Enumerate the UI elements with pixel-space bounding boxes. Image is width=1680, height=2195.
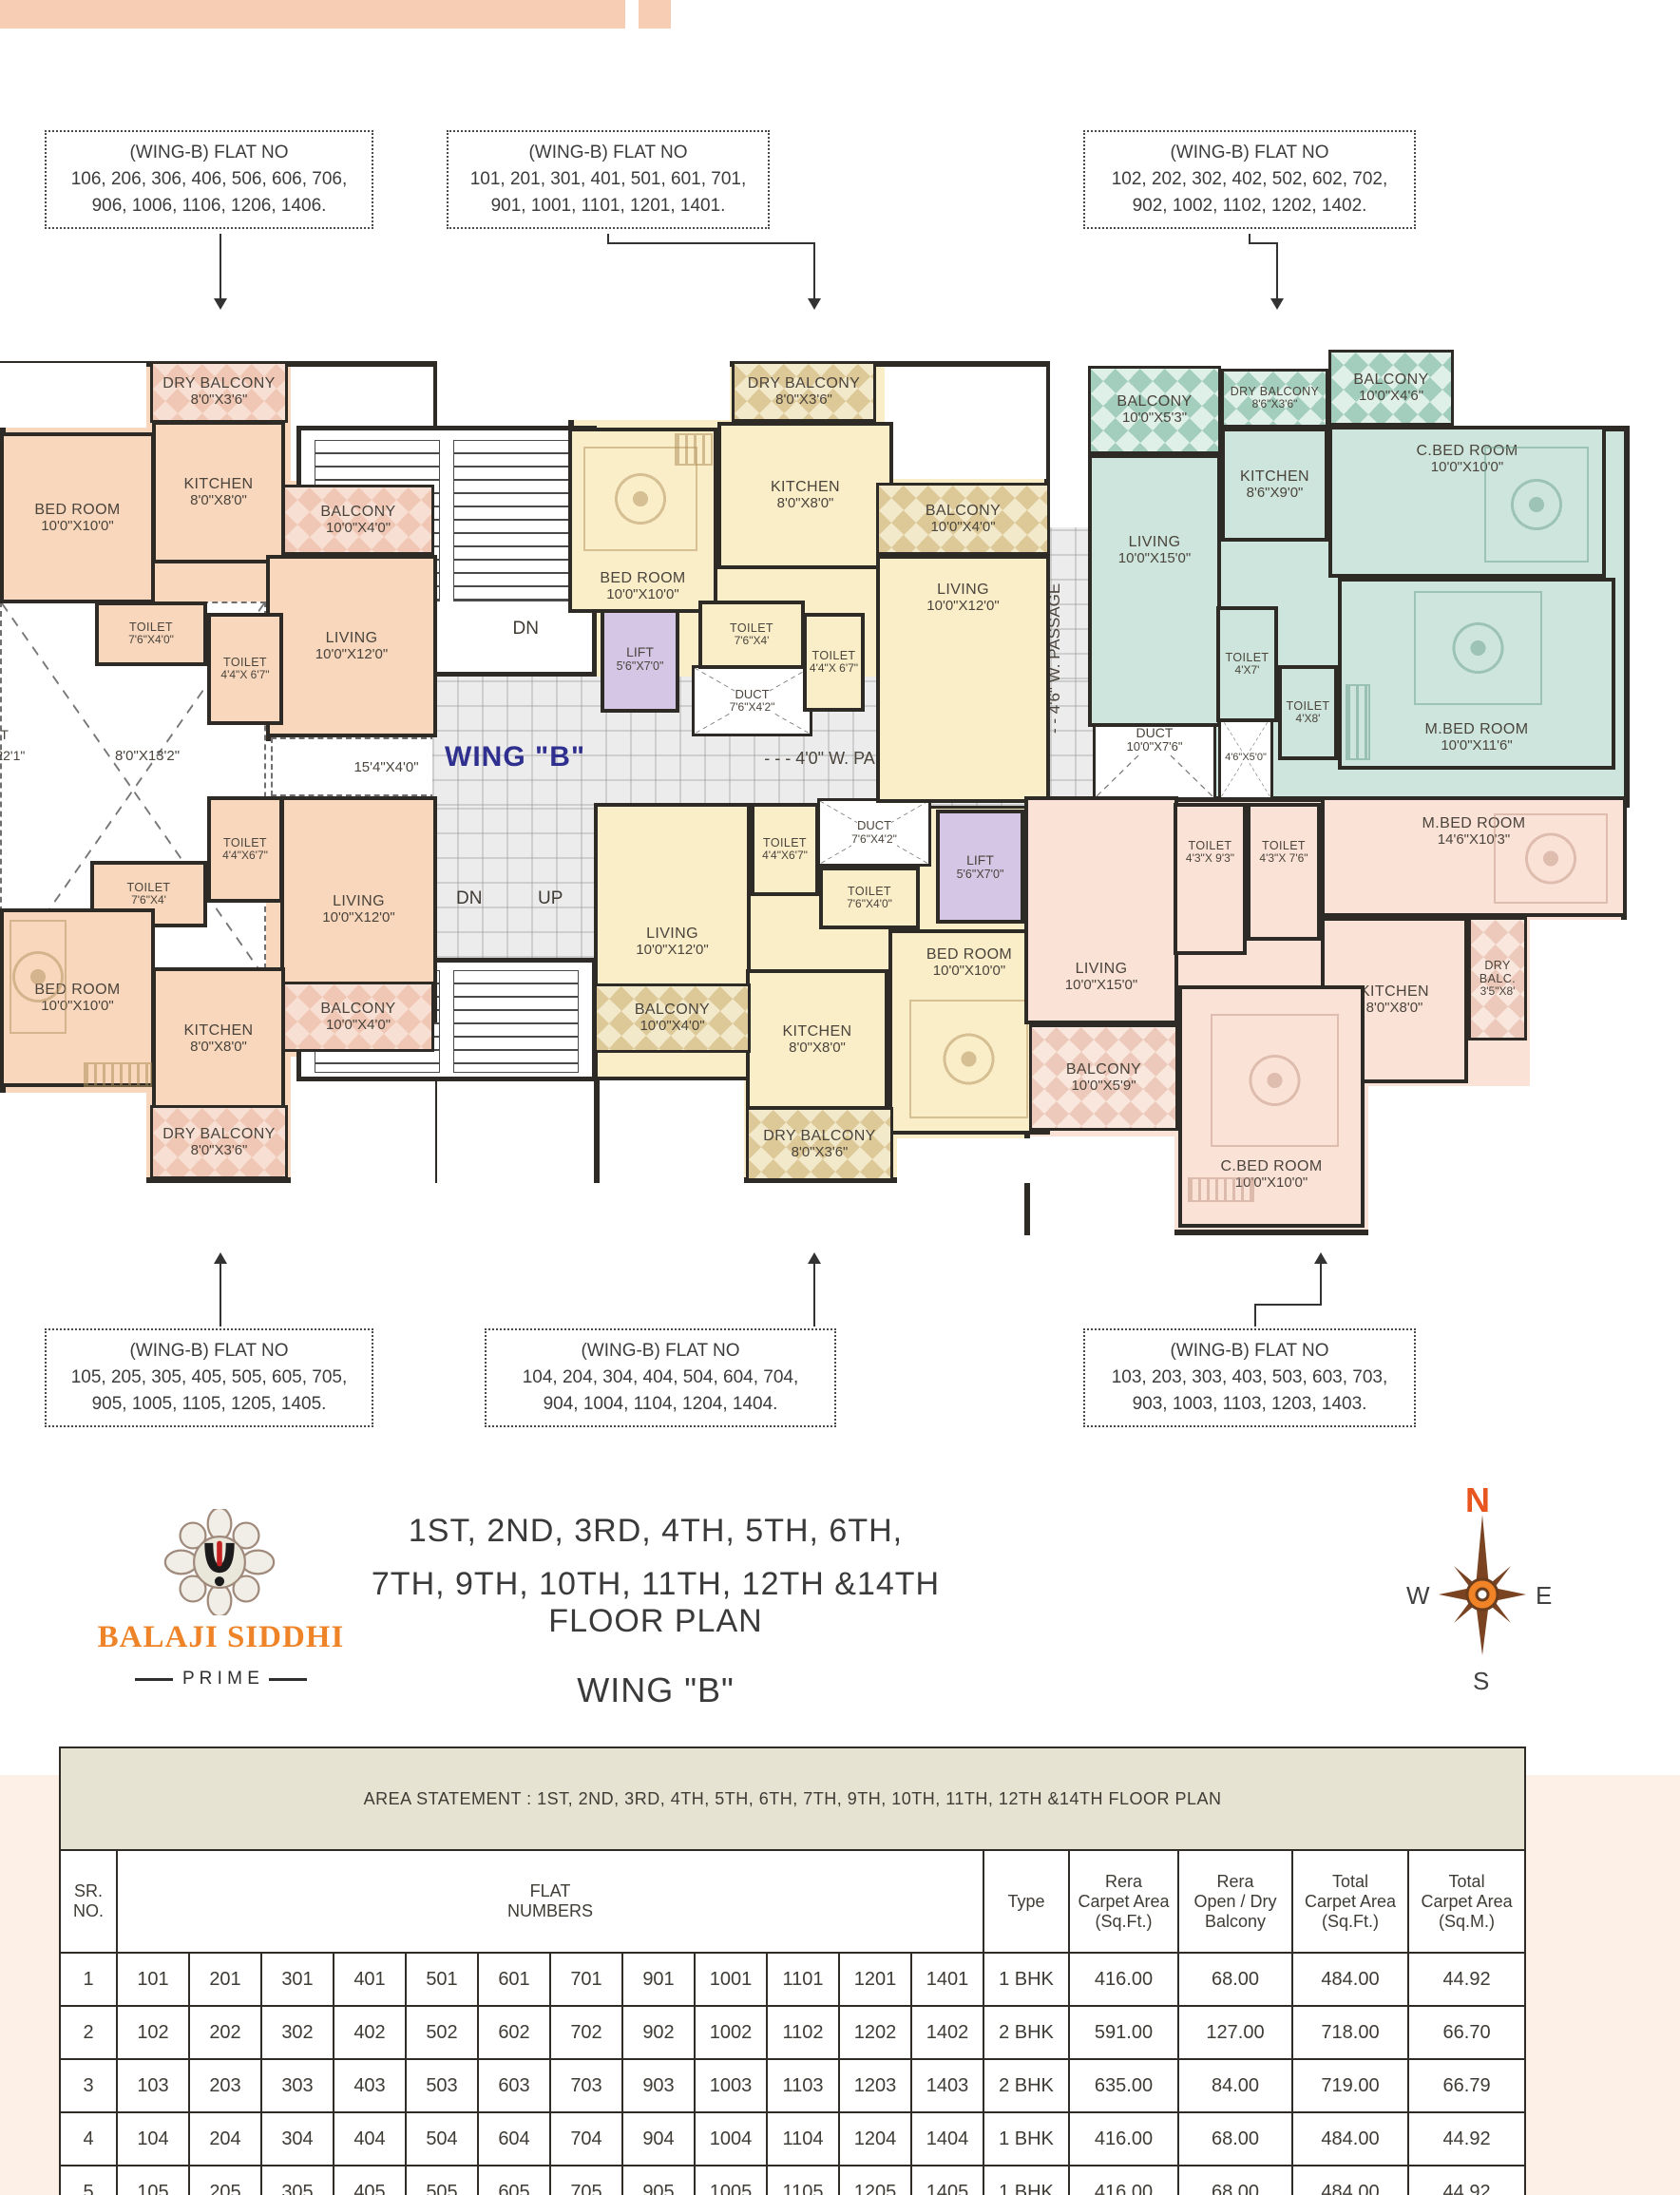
plan-title-line1: 1ST, 2ND, 3RD, 4TH, 5TH, 6TH,	[371, 1513, 941, 1550]
wing-label: WING "B"	[445, 741, 644, 775]
flat-number-cell: 601	[478, 1953, 550, 2006]
arrow-line	[1276, 242, 1278, 301]
compass: N W E S	[1406, 1480, 1568, 1708]
flat-number-cell: 1404	[911, 2112, 983, 2166]
room-dims: 7'6"X4'	[735, 635, 770, 647]
callout-line: 103, 203, 303, 403, 503, 603, 703,	[1085, 1367, 1414, 1388]
room-bedroom: BED ROOM10'0"X10'0"	[568, 428, 717, 613]
room-label: TOILET	[127, 881, 171, 894]
room-dims: 4'X7'	[1235, 664, 1260, 677]
room-balcony: BALCONY10'0"X4'0"	[282, 982, 434, 1052]
room-bedroom: C.BED ROOM10'0"X10'0"	[1178, 985, 1365, 1228]
brand-sub-label: P R I M E	[182, 1669, 259, 1689]
plan-title-line2: 7TH, 9TH, 10TH, 11TH, 12TH &14TH FLOOR P…	[323, 1566, 988, 1640]
room-label: BED ROOM	[926, 946, 1012, 964]
room-dims: 8'0"X3'6"	[775, 392, 832, 409]
room-label: DRY BALCONY	[1231, 385, 1320, 398]
room-label: LIVING	[937, 582, 989, 599]
room-label: TOILET	[1226, 651, 1270, 664]
room-kitchen: KITCHEN8'6"X9'0"	[1221, 428, 1328, 542]
sr-cell: 5	[60, 2166, 117, 2195]
flat-number-cell: 705	[550, 2166, 622, 2195]
duct-dims: 10'0"X7'6"	[1126, 740, 1182, 754]
room-label: LIVING	[1129, 534, 1181, 551]
room-label: TOILET	[1287, 699, 1330, 713]
dash	[135, 1678, 173, 1681]
arrow-up-icon	[808, 1252, 821, 1264]
room-living: LIVING10'0"X15'0"	[1024, 796, 1178, 1024]
flat-number-cell: 201	[189, 1953, 261, 2006]
duct-dims: 4'6"X5'0"	[1225, 752, 1267, 763]
room-label: BALCONY	[635, 1002, 710, 1019]
room-label: TOILET	[763, 836, 807, 849]
flat-number-cell: 1405	[911, 2166, 983, 2195]
room-dims: 10'0"X5'3"	[1122, 410, 1187, 427]
col-rera-open: Rera Open / Dry Balcony	[1178, 1850, 1292, 1953]
flat-number-cell: 501	[406, 1953, 478, 2006]
rera-carpet-cell: 416.00	[1069, 2166, 1178, 2195]
stairs-up-label: UP	[538, 888, 563, 909]
total-sqm-cell: 66.79	[1408, 2059, 1525, 2112]
flat-number-cell: 404	[334, 2112, 406, 2166]
room-dims: 4'4"X6'7"	[762, 849, 808, 862]
room-toilet: TOILET4'4"X6'7"	[751, 803, 819, 896]
arrow-line	[813, 1264, 815, 1327]
flat-number-cell: 1002	[695, 2006, 767, 2059]
callout-title: (WING-B) FLAT NO	[47, 143, 372, 163]
room-label: M.BED ROOM	[1425, 721, 1529, 738]
rera-carpet-cell: 416.00	[1069, 2112, 1178, 2166]
callout-title: (WING-B) FLAT NO	[47, 1341, 372, 1362]
flat-number-cell: 1402	[911, 2006, 983, 2059]
table-row: 4104204304404504604704904100411041204140…	[60, 2112, 1525, 2166]
table-row: 5105205305405505605705905100511051205140…	[60, 2166, 1525, 2195]
wardrobe	[1188, 1177, 1254, 1202]
room-label: C.BED ROOM	[1220, 1158, 1322, 1175]
duct-bottom: DUCT 7'6"X4'2"	[817, 798, 931, 867]
sr-cell: 2	[60, 2006, 117, 2059]
flat-number-cell: 1103	[767, 2059, 839, 2112]
duct-label: DUCT	[735, 688, 769, 701]
room-toilet: TOILET7'6"X4'0"	[819, 867, 920, 929]
flat-number-cell: 903	[622, 2059, 695, 2112]
room-label: DRY BALCONY	[162, 1126, 276, 1143]
lift-dims: 5'6"X7'0"	[957, 868, 1004, 881]
room-dims: 10'0"X10'0"	[41, 519, 113, 535]
room-label: BALCONY	[320, 504, 395, 521]
flat-number-cell: 1204	[839, 2112, 911, 2166]
type-cell: 2 BHK	[983, 2006, 1069, 2059]
room-dims: 10'0"X4'0"	[930, 520, 995, 536]
room-dims: 10'0"X15'0"	[1118, 551, 1191, 567]
callout-line: 106, 206, 306, 406, 506, 606, 706,	[47, 169, 372, 190]
room-kitchen: KITCHEN8'0"X8'0"	[717, 422, 893, 569]
room-label: DRY BALC.	[1471, 959, 1524, 985]
room-dims: 10'0"X4'0"	[326, 1018, 391, 1034]
bed-motif	[1484, 447, 1589, 563]
flat-number-cell: 402	[334, 2006, 406, 2059]
wardrobe	[1346, 684, 1370, 760]
flat-number-cell: 105	[117, 2166, 189, 2195]
flat-number-cell: 1201	[839, 1953, 911, 2006]
room-label: BALCONY	[926, 503, 1001, 520]
type-cell: 1 BHK	[983, 1953, 1069, 2006]
room-label: KITCHEN	[183, 476, 253, 493]
room-balcony: BALCONY10'0"X4'0"	[282, 485, 434, 555]
room-bedroom: C.BED ROOM10'0"X10'0"	[1328, 426, 1606, 578]
flat-number-cell: 102	[117, 2006, 189, 2059]
lift-bottom: LIFT 5'6"X7'0"	[936, 810, 1024, 924]
room-toilet: TOILET4'4"X 6'7"	[803, 613, 865, 712]
room-dims: 8'0"X3'6"	[191, 1143, 248, 1159]
room-living: LIVING10'0"X12'0"	[266, 555, 437, 737]
room-toilet: TOILET4'X7'	[1216, 606, 1278, 722]
lift-label: LIFT	[626, 644, 654, 659]
total-sqft-cell: 718.00	[1292, 2006, 1408, 2059]
room-label: BALCONY	[1066, 1061, 1141, 1078]
room-label: TOILET	[1189, 839, 1232, 852]
room-balcony: BALCONY10'0"X5'3"	[1088, 366, 1221, 454]
flat-number-cell: 305	[261, 2166, 334, 2195]
patch	[885, 367, 1046, 479]
rera-carpet-cell: 635.00	[1069, 2059, 1178, 2112]
lift-top: LIFT 5'6"X7'0"	[601, 605, 679, 713]
rera-open-cell: 84.00	[1178, 2059, 1292, 2112]
flat-number-cell: 304	[261, 2112, 334, 2166]
flat-number-cell: 1401	[911, 1953, 983, 2006]
room-dims: 8'0"X3'6"	[792, 1145, 849, 1161]
room-dims: 8'0"X3'6"	[191, 392, 248, 409]
flat-number-cell: 101	[117, 1953, 189, 2006]
room-dims: 4'3"X 9'3"	[1186, 852, 1234, 865]
duct-label: DUCT	[1136, 726, 1174, 740]
room-label: DRY BALCONY	[162, 375, 276, 392]
flat-number-cell: 302	[261, 2006, 334, 2059]
room-dims: 8'0"X8'0"	[789, 1040, 846, 1057]
room-label: LIVING	[1076, 961, 1128, 978]
table-title: AREA STATEMENT : 1ST, 2ND, 3RD, 4TH, 5TH…	[60, 1747, 1525, 1850]
room-toilet: TOILET4'X8'	[1278, 665, 1338, 760]
room-dims: 8'0"X8'0"	[1366, 1001, 1423, 1017]
room-kitchen: KITCHEN8'0"X8'0"	[152, 421, 285, 563]
flat-number-cell: 1101	[767, 1953, 839, 2006]
room-label: KITCHEN	[1360, 983, 1429, 1001]
flat-number-cell: 303	[261, 2059, 334, 2112]
patch	[568, 361, 730, 420]
flat-number-cell: 1104	[767, 2112, 839, 2166]
type-cell: 1 BHK	[983, 2112, 1069, 2166]
room-dry-balcony: DRY BALCONY8'0"X3'6"	[150, 1105, 288, 1179]
callout-line: 104, 204, 304, 404, 504, 604, 704,	[487, 1367, 834, 1388]
callout-title: (WING-B) FLAT NO	[1085, 143, 1414, 163]
flat-number-cell: 1003	[695, 2059, 767, 2112]
callout-line: 906, 1006, 1106, 1206, 1406.	[47, 196, 372, 217]
area-statement-table: AREA STATEMENT : 1ST, 2ND, 3RD, 4TH, 5TH…	[59, 1746, 1526, 2195]
callout-flats-101: (WING-B) FLAT NO 101, 201, 301, 401, 501…	[447, 130, 770, 229]
patch	[0, 363, 146, 428]
callout-line: 901, 1001, 1101, 1201, 1401.	[449, 196, 768, 217]
type-cell: 2 BHK	[983, 2059, 1069, 2112]
open-space-dims: 8'0"X13'2"	[95, 748, 200, 773]
room-dry-balcony: DRY BALCONY8'6"X3'6"	[1221, 369, 1328, 428]
room-dims: 7'6"X4'	[131, 894, 166, 907]
sr-cell: 1	[60, 1953, 117, 2006]
brand-logo	[160, 1509, 279, 1615]
flat-number-cell: 502	[406, 2006, 478, 2059]
decor-strip	[0, 0, 625, 29]
callout-line: 105, 205, 305, 405, 505, 605, 705,	[47, 1367, 372, 1388]
room-dims: 10'0"X4'6"	[1359, 389, 1423, 405]
brand-subname: P R I M E	[100, 1669, 342, 1689]
arrow-down-icon	[214, 298, 227, 310]
duct-top: DUCT 7'6"X4'2"	[692, 665, 812, 736]
decor-strip	[639, 0, 671, 29]
room-dims: 10'0"X10'0"	[933, 964, 1005, 980]
open-strip-dims: 15'4"X4'0"	[353, 759, 418, 775]
room-dims: 8'0"X8'0"	[190, 1040, 247, 1056]
callout-title: (WING-B) FLAT NO	[449, 143, 768, 163]
total-sqft-cell: 719.00	[1292, 2059, 1408, 2112]
room-balcony: BALCONY10'0"X4'0"	[876, 483, 1050, 555]
room-label: BALCONY	[1353, 372, 1428, 389]
room-balcony: BALCONY10'0"X5'9"	[1029, 1024, 1178, 1131]
patch	[0, 1093, 146, 1183]
arrow-down-icon	[1270, 298, 1284, 310]
total-sqm-cell: 44.92	[1408, 1953, 1525, 2006]
room-label: LIVING	[326, 630, 378, 647]
room-label: BED ROOM	[34, 502, 120, 519]
room-dims: 8'0"X8'0"	[777, 496, 834, 512]
room-label: KITCHEN	[771, 479, 840, 496]
flat-number-cell: 1105	[767, 2166, 839, 2195]
patch	[1030, 1136, 1174, 1235]
room-dims: 10'0"X12'0"	[636, 943, 708, 959]
room-label: TOILET	[812, 649, 856, 662]
compass-s: S	[1473, 1667, 1489, 1696]
room-dims: 10'0"X4'0"	[326, 521, 391, 537]
room-label: TOILET	[223, 656, 267, 669]
duct-left-dims: X22'1"	[0, 748, 61, 769]
stair-treads	[453, 440, 579, 601]
arrow-line	[607, 242, 815, 244]
room-dims: 4'4"X6'7"	[222, 849, 268, 862]
rera-carpet-cell: 591.00	[1069, 2006, 1178, 2059]
arrow-line	[1254, 1304, 1256, 1327]
total-sqft-cell: 484.00	[1292, 2112, 1408, 2166]
arrow-line	[813, 242, 815, 301]
room-bedroom: BED ROOM10'0"X10'0"	[0, 432, 155, 603]
room-dry-balcony: DRY BALCONY8'0"X3'6"	[746, 1107, 893, 1181]
room-label: KITCHEN	[782, 1023, 851, 1040]
room-living: LIVING10'0"X15'0"	[1088, 454, 1221, 727]
lift-dims: 5'6"X7'0"	[617, 659, 664, 673]
compass-star-icon	[1423, 1513, 1541, 1670]
arrow-up-icon	[214, 1252, 227, 1264]
table-row: 1101201301401501601701901100111011201140…	[60, 1953, 1525, 2006]
room-label: BALCONY	[1117, 393, 1192, 410]
room-label: DRY BALCONY	[763, 1128, 876, 1145]
flat-number-cell: 702	[550, 2006, 622, 2059]
callout-line: 903, 1003, 1103, 1203, 1403.	[1085, 1394, 1414, 1415]
flat-number-cell: 602	[478, 2006, 550, 2059]
flat-number-cell: 1001	[695, 1953, 767, 2006]
patch	[897, 1138, 1046, 1183]
flat-number-cell: 1202	[839, 2006, 911, 2059]
col-total-sqft: Total Carpet Area (Sq.Ft.)	[1292, 1850, 1408, 1953]
rera-open-cell: 68.00	[1178, 2166, 1292, 2195]
callout-flats-103: (WING-B) FLAT NO 103, 203, 303, 403, 503…	[1083, 1328, 1416, 1427]
room-dims: 10'0"X15'0"	[1065, 978, 1137, 994]
table-row: 2102202302402502602702902100211021202140…	[60, 2006, 1525, 2059]
room-bedroom: BED ROOM10'0"X10'0"	[0, 908, 155, 1087]
room-dims: 10'0"X12'0"	[926, 599, 999, 615]
room-dry-balcony: DRY BALC.3'5"X8'	[1468, 917, 1527, 1040]
patch	[1368, 1086, 1530, 1235]
callout-flats-106: (WING-B) FLAT NO 106, 206, 306, 406, 506…	[45, 130, 373, 229]
passage-v-label: - - 4'6" W. PASSAGE	[1045, 521, 1078, 796]
room-dims: 10'0"X4'0"	[640, 1019, 704, 1035]
lift-label: LIFT	[966, 852, 994, 868]
col-type: Type	[983, 1850, 1069, 1953]
room-label: BED ROOM	[600, 570, 685, 587]
flat-number-cell: 1005	[695, 2166, 767, 2195]
flat-number-cell: 701	[550, 1953, 622, 2006]
arrow-line	[1320, 1264, 1322, 1306]
duct-dims: 7'6"X4'2"	[730, 701, 775, 714]
col-rera-carpet: Rera Carpet Area (Sq.Ft.)	[1069, 1850, 1178, 1953]
flat-number-cell: 1205	[839, 2166, 911, 2195]
table-row: 3103203303403503603703903100311031203140…	[60, 2059, 1525, 2112]
col-total-sqm: Total Carpet Area (Sq.M.)	[1408, 1850, 1525, 1953]
col-sr: SR. NO.	[60, 1850, 117, 1953]
stair-treads	[453, 970, 579, 1073]
arrow-down-icon	[808, 298, 821, 310]
flat-number-cell: 1102	[767, 2006, 839, 2059]
flat-number-cell: 605	[478, 2166, 550, 2195]
flat-number-cell: 503	[406, 2059, 478, 2112]
bed-motif	[1494, 813, 1608, 904]
flat-number-cell: 401	[334, 1953, 406, 2006]
flat-number-cell: 504	[406, 2112, 478, 2166]
room-dims: 7'6"X4'0"	[847, 898, 892, 910]
callout-line: 904, 1004, 1104, 1204, 1404.	[487, 1394, 834, 1415]
arrow-line	[220, 234, 221, 300]
floor-plan-page: (WING-B) FLAT NO 106, 206, 306, 406, 506…	[0, 0, 1680, 2195]
room-label: LIVING	[333, 893, 385, 910]
flat-number-cell: 905	[622, 2166, 695, 2195]
total-sqft-cell: 484.00	[1292, 1953, 1408, 2006]
sr-cell: 4	[60, 2112, 117, 2166]
flat-number-cell: 301	[261, 1953, 334, 2006]
room-dims: 8'0"X8'0"	[190, 493, 247, 509]
callout-line: 902, 1002, 1102, 1202, 1402.	[1085, 196, 1414, 217]
room-toilet: TOILET4'4"X 6'7"	[207, 613, 283, 725]
flat-number-cell: 203	[189, 2059, 261, 2112]
room-dims: 8'6"X3'6"	[1252, 398, 1298, 410]
room-dims: 7'6"X4'0"	[128, 634, 174, 646]
wardrobe	[675, 433, 713, 466]
room-dims: 10'0"X12'0"	[322, 910, 394, 926]
rera-open-cell: 68.00	[1178, 1953, 1292, 2006]
callout-line: 905, 1005, 1105, 1205, 1405.	[47, 1394, 372, 1415]
total-sqm-cell: 44.92	[1408, 2112, 1525, 2166]
callout-line: 102, 202, 302, 402, 502, 602, 702,	[1085, 169, 1414, 190]
bed-motif	[10, 920, 67, 1034]
brand-name: BALAJI SIDDHI	[95, 1620, 347, 1655]
flat-number-cell: 505	[406, 2166, 478, 2195]
room-label: DRY BALCONY	[748, 375, 861, 392]
callout-flats-102: (WING-B) FLAT NO 102, 202, 302, 402, 502…	[1083, 130, 1416, 229]
room-dry-balcony: DRY BALCONY8'0"X3'6"	[150, 361, 288, 423]
flat-number-cell: 205	[189, 2166, 261, 2195]
room-dims: 4'4"X 6'7"	[220, 669, 269, 681]
flat-number-cell: 104	[117, 2112, 189, 2166]
arrow-line	[1249, 242, 1278, 244]
room-dry-balcony: DRY BALCONY8'0"X3'6"	[732, 361, 876, 422]
flat-number-cell: 901	[622, 1953, 695, 2006]
flat-number-cell: 405	[334, 2166, 406, 2195]
duct-small: 4'6"X5'0"	[1218, 715, 1273, 800]
room-dims: 4'4"X 6'7"	[810, 662, 858, 675]
total-sqm-cell: 66.70	[1408, 2006, 1525, 2059]
room-kitchen: KITCHEN8'0"X8'0"	[152, 967, 285, 1110]
callout-title: (WING-B) FLAT NO	[1085, 1341, 1414, 1362]
flat-number-cell: 902	[622, 2006, 695, 2059]
duct-left-label: DUCT	[0, 727, 46, 748]
rera-open-cell: 127.00	[1178, 2006, 1292, 2059]
bed-motif	[909, 1000, 1028, 1118]
room-dims: 4'3"X 7'6"	[1259, 852, 1308, 865]
room-balcony: BALCONY10'0"X4'6"	[1328, 350, 1454, 426]
flat-number-cell: 603	[478, 2059, 550, 2112]
room-dims: 10'0"X12'0"	[315, 647, 388, 663]
room-bedroom: M.BED ROOM10'0"X11'6"	[1338, 578, 1615, 770]
room-label: KITCHEN	[183, 1022, 253, 1040]
rera-carpet-cell: 416.00	[1069, 1953, 1178, 2006]
room-label: TOILET	[1262, 839, 1306, 852]
flat-number-cell: 1004	[695, 2112, 767, 2166]
rera-open-cell: 68.00	[1178, 2112, 1292, 2166]
wing-title: WING "B"	[513, 1670, 798, 1710]
room-label: TOILET	[848, 885, 891, 898]
room-dims: 10'0"X5'9"	[1071, 1078, 1136, 1095]
room-bedroom: M.BED ROOM14'6"X10'3"	[1321, 796, 1627, 917]
flat-number-cell: 403	[334, 2059, 406, 2112]
stairs-dn-label: DN	[456, 888, 482, 909]
flat-number-cell: 202	[189, 2006, 261, 2059]
room-kitchen: KITCHEN8'0"X8'0"	[746, 969, 888, 1110]
patch	[1530, 920, 1627, 1235]
flower-logo-icon	[160, 1509, 279, 1615]
callout-line: 101, 201, 301, 401, 501, 601, 701,	[449, 169, 768, 190]
callout-title: (WING-B) FLAT NO	[487, 1341, 834, 1362]
room-living: LIVING10'0"X12'0"	[876, 555, 1050, 803]
compass-e: E	[1536, 1581, 1552, 1611]
total-sqm-cell: 44.92	[1408, 2166, 1525, 2195]
room-label: TOILET	[730, 621, 773, 635]
room-toilet: TOILET4'3"X 7'6"	[1247, 803, 1321, 941]
passage-lower	[432, 806, 597, 958]
room-dims: 10'0"X11'6"	[1441, 738, 1512, 754]
room-dims: 10'0"X10'0"	[606, 587, 678, 603]
room-label: TOILET	[129, 620, 173, 634]
room-toilet: TOILET7'6"X4'	[698, 601, 805, 669]
room-toilet: TOILET4'4"X6'7"	[207, 796, 283, 903]
flat-number-cell: 703	[550, 2059, 622, 2112]
room-label: LIVING	[646, 926, 698, 943]
callout-flats-104: (WING-B) FLAT NO 104, 204, 304, 404, 504…	[485, 1328, 836, 1427]
flat-number-cell: 1403	[911, 2059, 983, 2112]
